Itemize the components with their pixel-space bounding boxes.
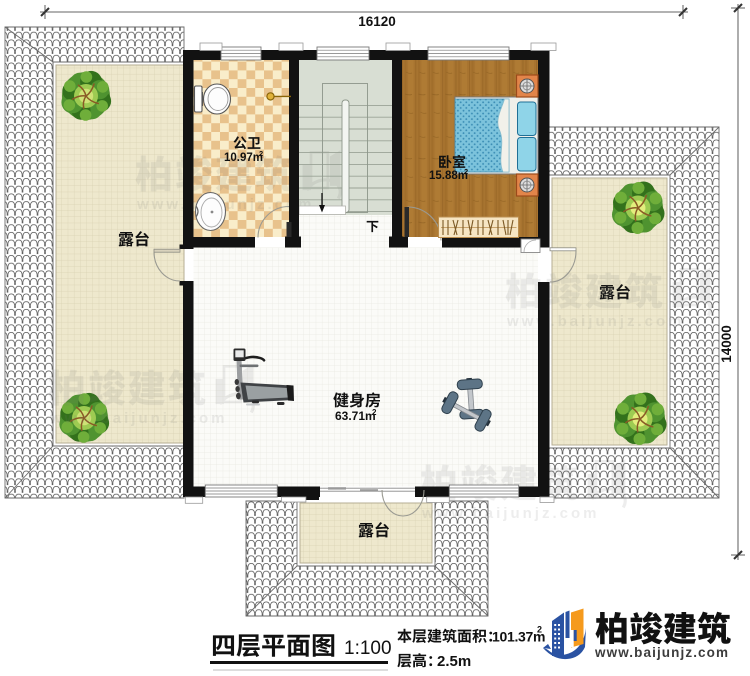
svg-text:1:100: 1:100 <box>344 638 392 659</box>
svg-text:63.71m: 63.71m <box>335 409 376 423</box>
svg-text:2: 2 <box>537 625 542 635</box>
svg-text:www.baijunjz.com: www.baijunjz.com <box>421 505 599 522</box>
svg-text:10.97m: 10.97m <box>224 152 263 164</box>
svg-text:2: 2 <box>464 167 468 176</box>
svg-text:www.baijunjz.com: www.baijunjz.com <box>49 410 227 427</box>
svg-text:15.88m: 15.88m <box>429 170 468 182</box>
svg-text:2: 2 <box>372 408 377 417</box>
svg-text:16120: 16120 <box>358 14 396 29</box>
svg-text:www.baijunjz.com: www.baijunjz.com <box>506 313 684 330</box>
svg-text:2.5m: 2.5m <box>437 653 471 670</box>
svg-text:2: 2 <box>259 149 263 158</box>
svg-text:14000: 14000 <box>719 325 734 363</box>
svg-text:www.baijunjz.com: www.baijunjz.com <box>594 645 729 660</box>
